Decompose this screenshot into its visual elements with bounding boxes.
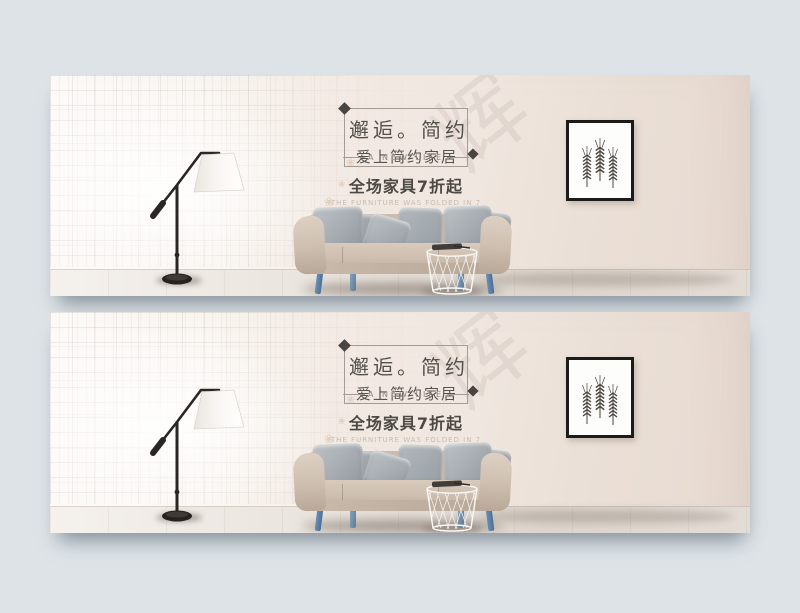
flower-ornament-icon: ❀ (338, 418, 346, 427)
flower-ornament-icon: ❀ (324, 433, 334, 445)
tagline-row: A NEW LIFE (343, 153, 469, 162)
wheat-picture-frame (566, 120, 634, 201)
headline-box: 邂逅。简约 爱上简约家居 A NEW LIFE (344, 108, 468, 167)
sofa-armrest-right (479, 452, 513, 512)
sofa-leg (350, 509, 356, 528)
tagline-line-right (447, 394, 469, 395)
promo-subtext: THE FURNITURE WAS FOLDED IN 7 (326, 199, 486, 207)
banner-tagline: A NEW LIFE (365, 390, 447, 399)
page-background: 辉 (0, 0, 800, 613)
wheat-icon (577, 131, 623, 191)
tagline-line-right (447, 157, 469, 158)
sofa-cast-shadow (482, 273, 734, 286)
wire-basket-table (424, 479, 480, 533)
wheat-icon (577, 368, 623, 428)
floor-lamp (145, 382, 250, 530)
flower-ornament-icon: ❀ (346, 394, 355, 405)
promo-block: 全场家具7折起 THE FURNITURE WAS FOLDED IN 7 (326, 173, 486, 207)
sofa-leg (350, 272, 356, 291)
banner-title: 邂逅。简约 (345, 114, 467, 143)
sofa-armrest-left (293, 452, 327, 512)
promo-block: 全场家具7折起 THE FURNITURE WAS FOLDED IN 7 (326, 410, 486, 444)
flower-ornament-icon: ❀ (338, 181, 346, 190)
sofa-armrest-left (293, 215, 327, 275)
wire-basket-table (424, 242, 480, 296)
wheat-picture-frame (566, 357, 634, 438)
flower-ornament-icon: ❀ (346, 157, 355, 168)
furniture-banner-1[interactable]: 辉 (50, 75, 750, 296)
promo-subtext: THE FURNITURE WAS FOLDED IN 7 (326, 436, 486, 444)
banner-title: 邂逅。简约 (345, 351, 467, 380)
promo-text: 全场家具7折起 (326, 173, 486, 197)
banner-tagline: A NEW LIFE (365, 153, 447, 162)
headline-box: 邂逅。简约 爱上简约家居 A NEW LIFE (344, 345, 468, 404)
sofa-cast-shadow (482, 510, 734, 523)
furniture-banner-2[interactable]: 辉 (50, 312, 750, 533)
sofa-armrest-right (479, 215, 513, 275)
floor-lamp (145, 145, 250, 293)
tagline-row: A NEW LIFE (343, 390, 469, 399)
promo-text: 全场家具7折起 (326, 410, 486, 434)
flower-ornament-icon: ❀ (324, 196, 334, 208)
